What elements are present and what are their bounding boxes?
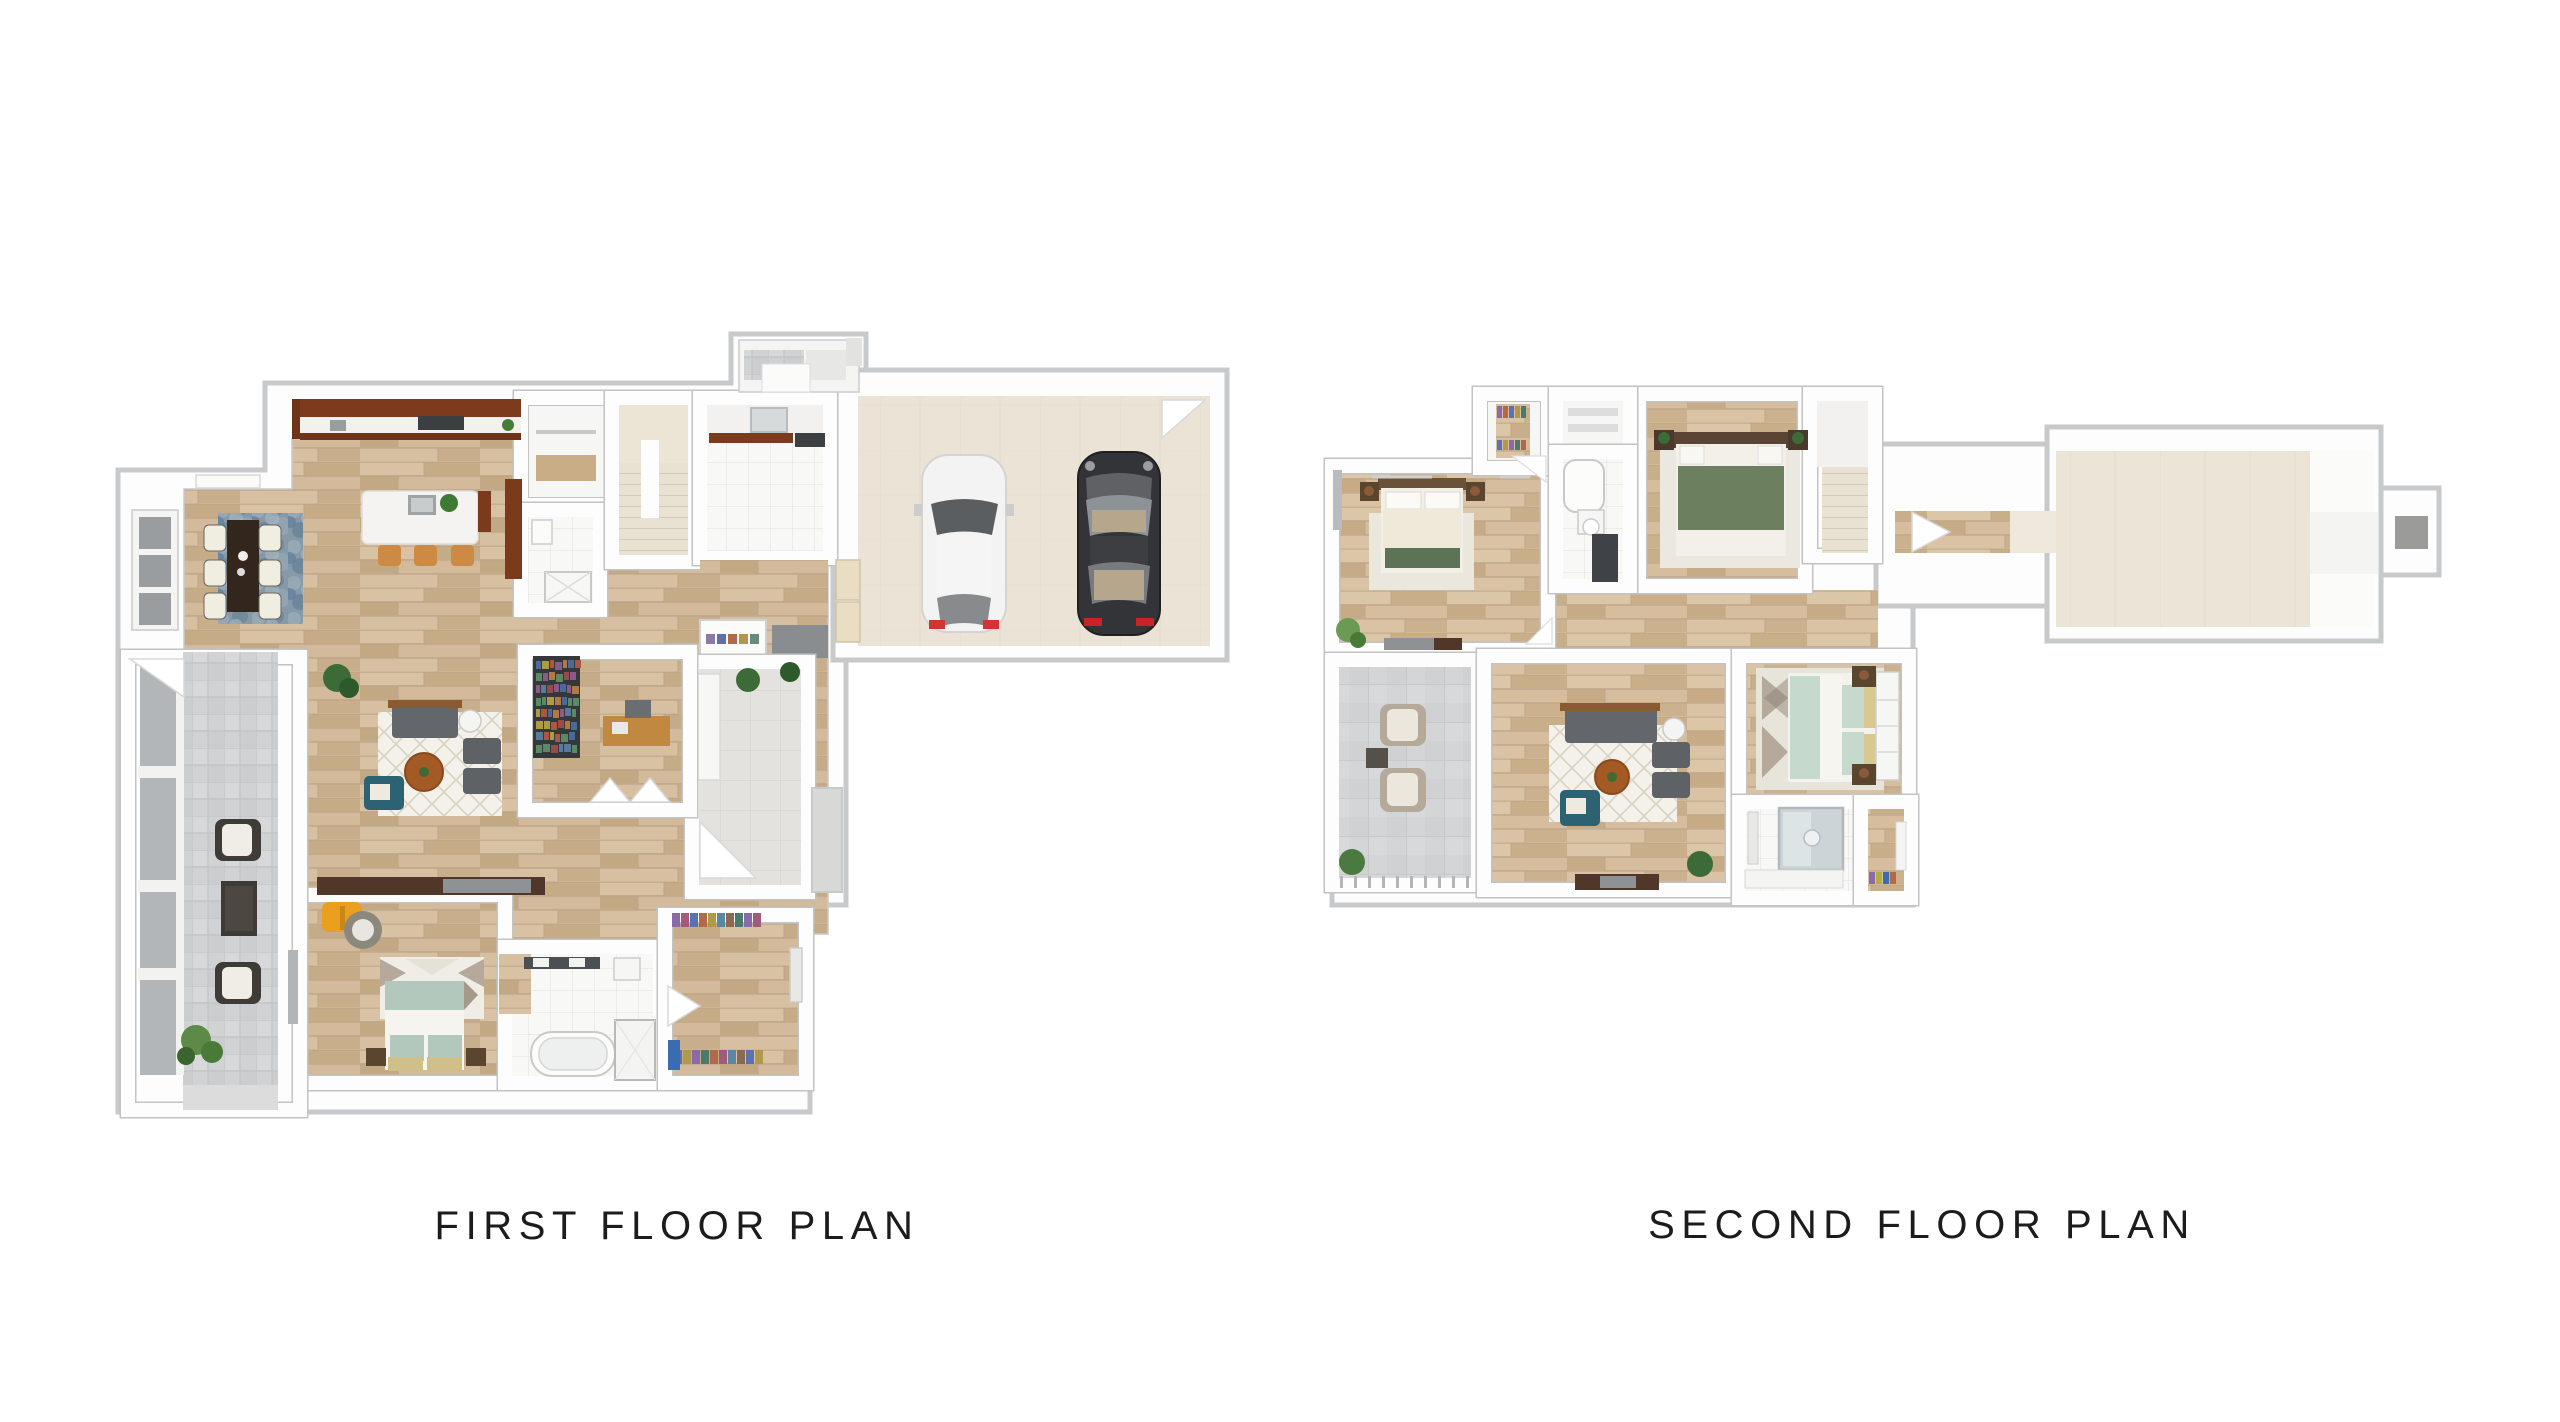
svg-text:FIRST FLOOR PLAN: FIRST FLOOR PLAN [435, 1204, 920, 1248]
svg-text:SECOND FLOOR PLAN: SECOND FLOOR PLAN [1648, 1203, 2196, 1247]
